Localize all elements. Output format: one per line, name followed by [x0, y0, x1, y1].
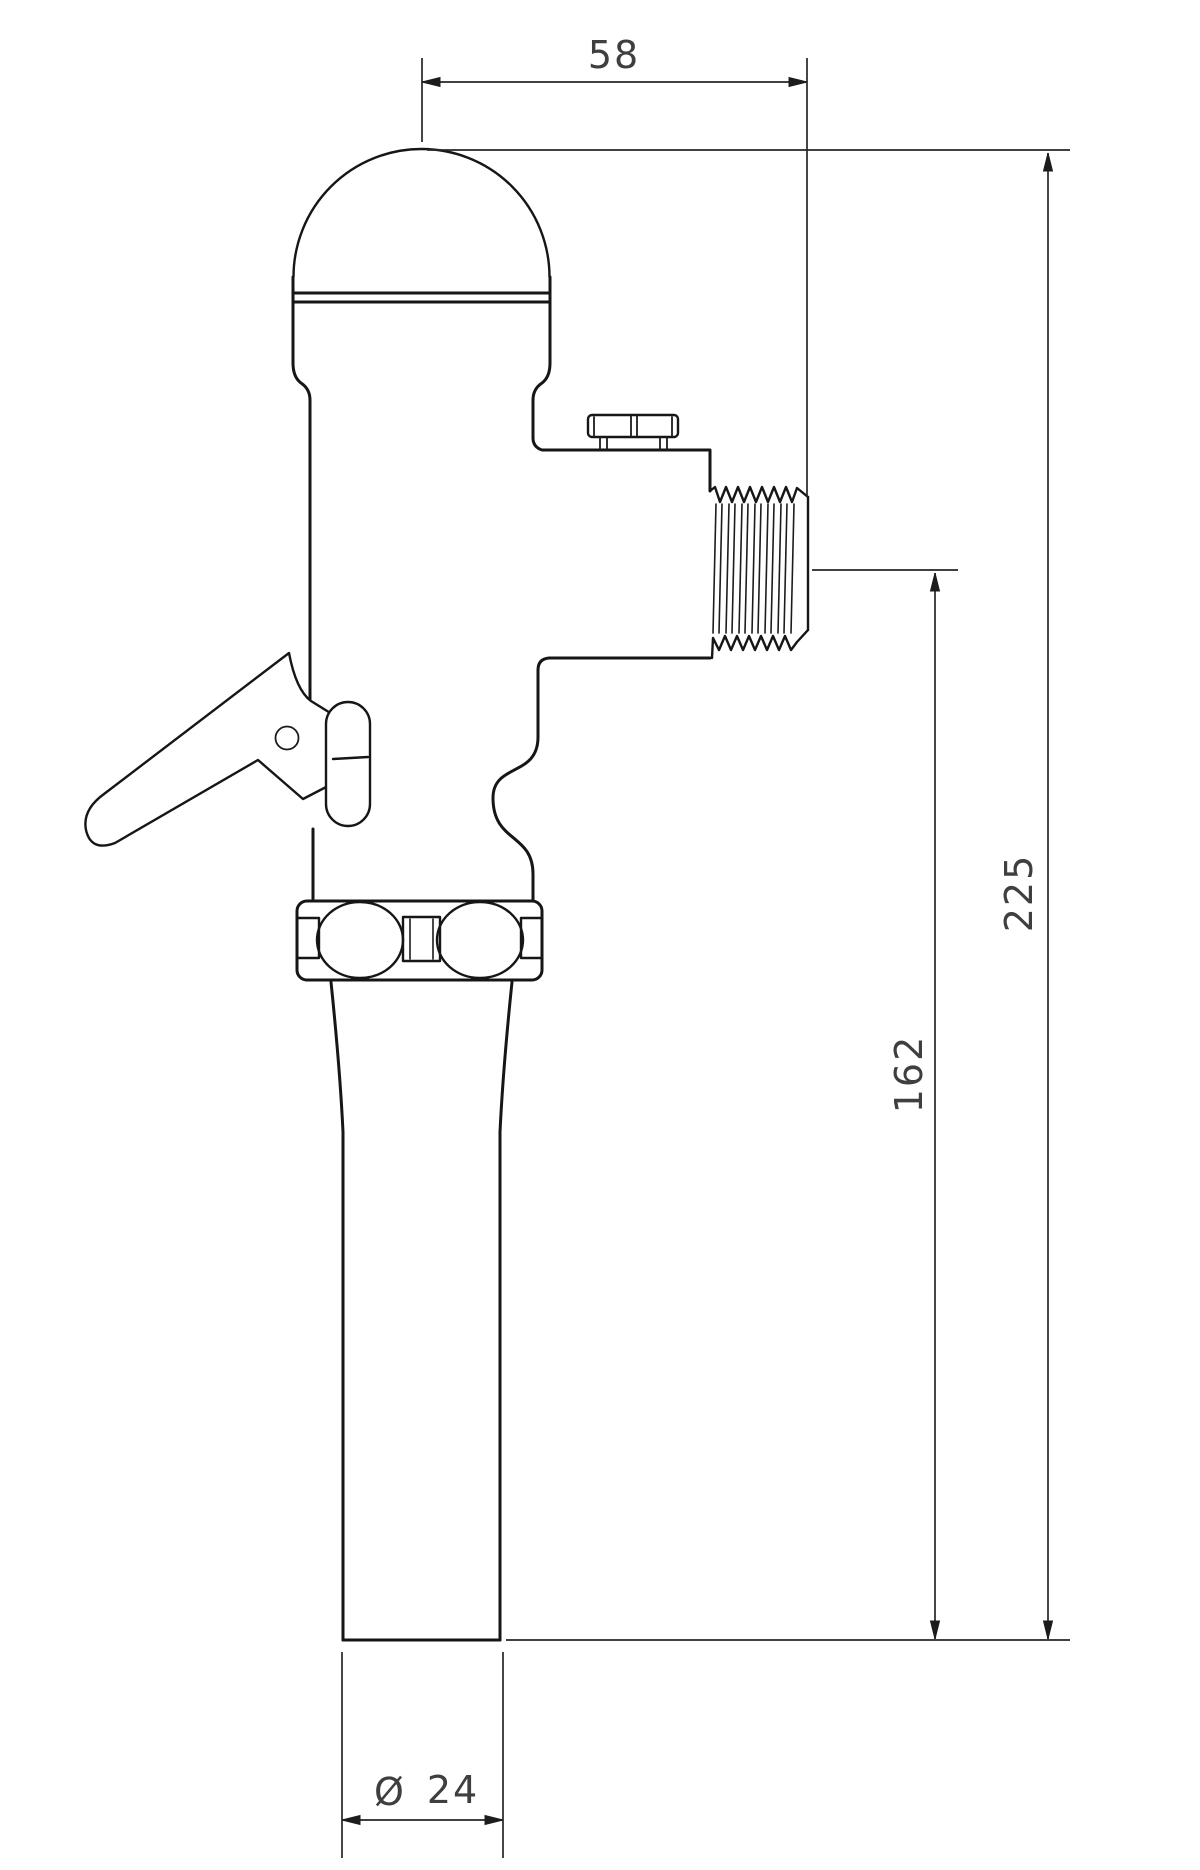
- screw-slot: [631, 416, 637, 437]
- dim225-arrow-bottom: [1044, 1621, 1053, 1639]
- dim-top-width-label: 58: [588, 33, 640, 77]
- dimension-tube-diameter: Ø 24: [342, 1652, 503, 1858]
- thread-crest-bottom: [712, 630, 808, 658]
- outlet-threads: [710, 487, 808, 658]
- cap-seam: [293, 277, 550, 302]
- nut-left-facet: [297, 918, 319, 958]
- body-right-edge: [533, 302, 710, 491]
- nut-center-facet: [403, 917, 440, 961]
- dome-arc: [294, 149, 550, 277]
- nut-left-curved-facet: [317, 902, 403, 978]
- dim58-extension-lines: [422, 58, 807, 497]
- screw-head-facets: [594, 417, 672, 436]
- tube-right-edge: [500, 982, 512, 1640]
- bleed-screw: [588, 415, 678, 450]
- union-nut: [297, 901, 542, 980]
- body-left-edge: [293, 302, 310, 700]
- nut-center-facet-inner: [410, 919, 433, 959]
- dim225-arrow-top: [1044, 153, 1053, 171]
- drawing-sheet: 58 225 162 Ø 24: [0, 0, 1200, 1870]
- dim162-arrow-top: [931, 573, 940, 591]
- dimension-outlet-height: 162: [506, 570, 1070, 1640]
- tube-left-edge: [331, 982, 343, 1640]
- dome-cap: [293, 149, 550, 302]
- valve-outline: [85, 149, 808, 1640]
- dim-tube-diameter-label: 24: [427, 1768, 479, 1812]
- dim58-arrow-left: [422, 78, 440, 87]
- nut-outline: [297, 901, 542, 980]
- dim58-arrow-right: [789, 78, 807, 87]
- lever-pivot-lug: [326, 702, 370, 826]
- lever-pivot-hole: [276, 727, 299, 750]
- lever-handle: [85, 653, 370, 846]
- thread-lines: [713, 504, 794, 633]
- dim24-arrow-left: [342, 1816, 360, 1825]
- thread-crest-top: [710, 487, 808, 502]
- screw-stem: [600, 437, 667, 450]
- outlet-tube: [331, 982, 512, 1640]
- dim-overall-height-label: 225: [997, 854, 1041, 933]
- dimension-top-width: 58: [422, 33, 807, 497]
- dim-outlet-height-label: 162: [887, 1035, 931, 1114]
- technical-drawing-canvas: 58 225 162 Ø 24: [0, 0, 1200, 1870]
- dimension-overall-height: 225: [427, 150, 1070, 1639]
- diameter-symbol: Ø: [374, 1770, 406, 1814]
- dim162-arrow-bottom: [931, 1621, 940, 1639]
- nut-right-curved-facet: [437, 902, 523, 978]
- body-right-lower-profile: [493, 658, 710, 901]
- screw-head: [588, 415, 678, 437]
- dim24-extension-lines: [342, 1652, 503, 1858]
- dim24-arrow-right: [485, 1816, 503, 1825]
